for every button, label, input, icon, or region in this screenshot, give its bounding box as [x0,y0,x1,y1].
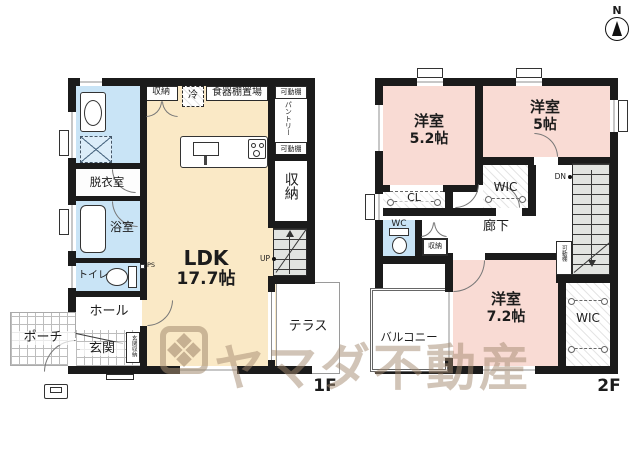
wall [268,221,307,228]
entrance-outside-step [106,374,134,380]
wall [558,283,566,366]
wall [556,275,610,283]
entrance-storage-label: 玄関収納 [130,335,136,357]
stair-arrow-line [591,170,592,262]
vent-hood [59,209,69,235]
vent-hood [618,100,628,132]
door-opening [496,208,522,216]
wall [268,86,275,228]
window [417,78,443,86]
stove-burner [259,143,264,148]
vent-hood [516,68,542,78]
window [80,78,102,86]
wall [528,157,536,216]
stove-burner [253,150,260,157]
door-opening [534,157,558,165]
closet-right-label: 収納 [283,172,298,200]
watermark-text: ヤマダ不動産 [214,328,532,400]
vent-hood [59,130,69,156]
stair-arrow-head [588,260,596,267]
wall [140,326,147,366]
dn-dot [568,175,572,179]
stove-burner [251,143,256,148]
bathtub [80,205,106,253]
stair-arrow-head [286,230,294,237]
window [375,194,383,220]
ps-label: PS [147,262,155,269]
floor2-label: 2F [592,378,626,396]
toilet2-bowl [392,237,407,254]
window [68,112,76,158]
floorplan-canvas: LDK 17.7帖 収納 冷 食器棚置場 可動棚 パントリー 可動棚 収納 UP… [0,0,640,469]
corridor-label: 廊下 [470,220,522,234]
toilet-tank [128,266,137,288]
wic-top-label: WIC [483,181,528,194]
dressing-room-label: 脱衣室 [76,176,138,188]
bedroom3-label: 洋室 [481,292,531,308]
compass-needle-icon [612,21,622,36]
window [516,78,542,86]
stair-arrow-line [289,236,290,274]
bedroom1-size-label: 5.2帖 [404,132,454,147]
wall [445,192,453,208]
vent-hood [365,194,375,220]
toilet-bowl [106,268,128,286]
bedroom2-size-label: 5帖 [520,118,570,133]
movable-shelf-mid-label: 可動棚 [275,146,307,153]
door-opening [453,253,485,260]
window [610,100,618,132]
porch-label: ポーチ [12,331,74,345]
window [68,205,76,251]
watermark-logo-icon [160,326,208,374]
wic-bottom-label: WIC [566,312,610,325]
ldk-label: LDK [160,248,252,269]
closet-top-label: 収納 [144,88,178,97]
up-label: UP [248,255,270,263]
vent-hood [417,68,443,78]
wall [76,291,142,297]
kitchen-sink [193,142,219,156]
washbasin-bowl [84,100,102,126]
washing-machine-space [80,136,112,163]
up-dot [272,257,276,261]
wall [268,276,315,284]
toilet-label: トイレ [77,271,109,282]
pantry-label: パントリー [284,101,291,136]
wall [275,154,307,161]
movable-shelf-label: 可動棚 [560,245,566,262]
dn-label: DN [544,173,566,181]
bedroom2-label: 洋室 [520,100,570,116]
watermark-logo-diamond-icon [167,333,201,367]
wall [76,258,142,263]
window [68,266,76,288]
wic-pole [570,300,606,301]
ps-box [140,264,145,269]
wall [268,284,275,292]
wic-pole [570,348,606,349]
bedroom1-label: 洋室 [404,114,454,130]
wc-label: WC [385,220,413,229]
entrance-label: 玄関 [80,342,124,356]
window [375,105,383,151]
cl-label: CL [399,192,429,204]
kitchen-faucet [204,156,207,165]
bathroom-label: 浴室 [104,221,140,234]
fridge-label: 冷 [182,91,204,102]
bedroom3-size-label: 7.2帖 [481,310,531,325]
dish-shelf-label: 食器棚置場 [206,88,268,99]
hall-label: ホール [76,305,142,319]
ldk-size-label: 17.7帖 [160,271,252,289]
wall [375,256,453,264]
compass-north-label: N [606,5,628,17]
storage-label: 収納 [422,243,448,250]
outdoor-sink-basin [50,387,62,393]
wall [445,260,453,292]
movable-shelf-top-label: 可動棚 [275,89,307,96]
wall [475,86,483,185]
